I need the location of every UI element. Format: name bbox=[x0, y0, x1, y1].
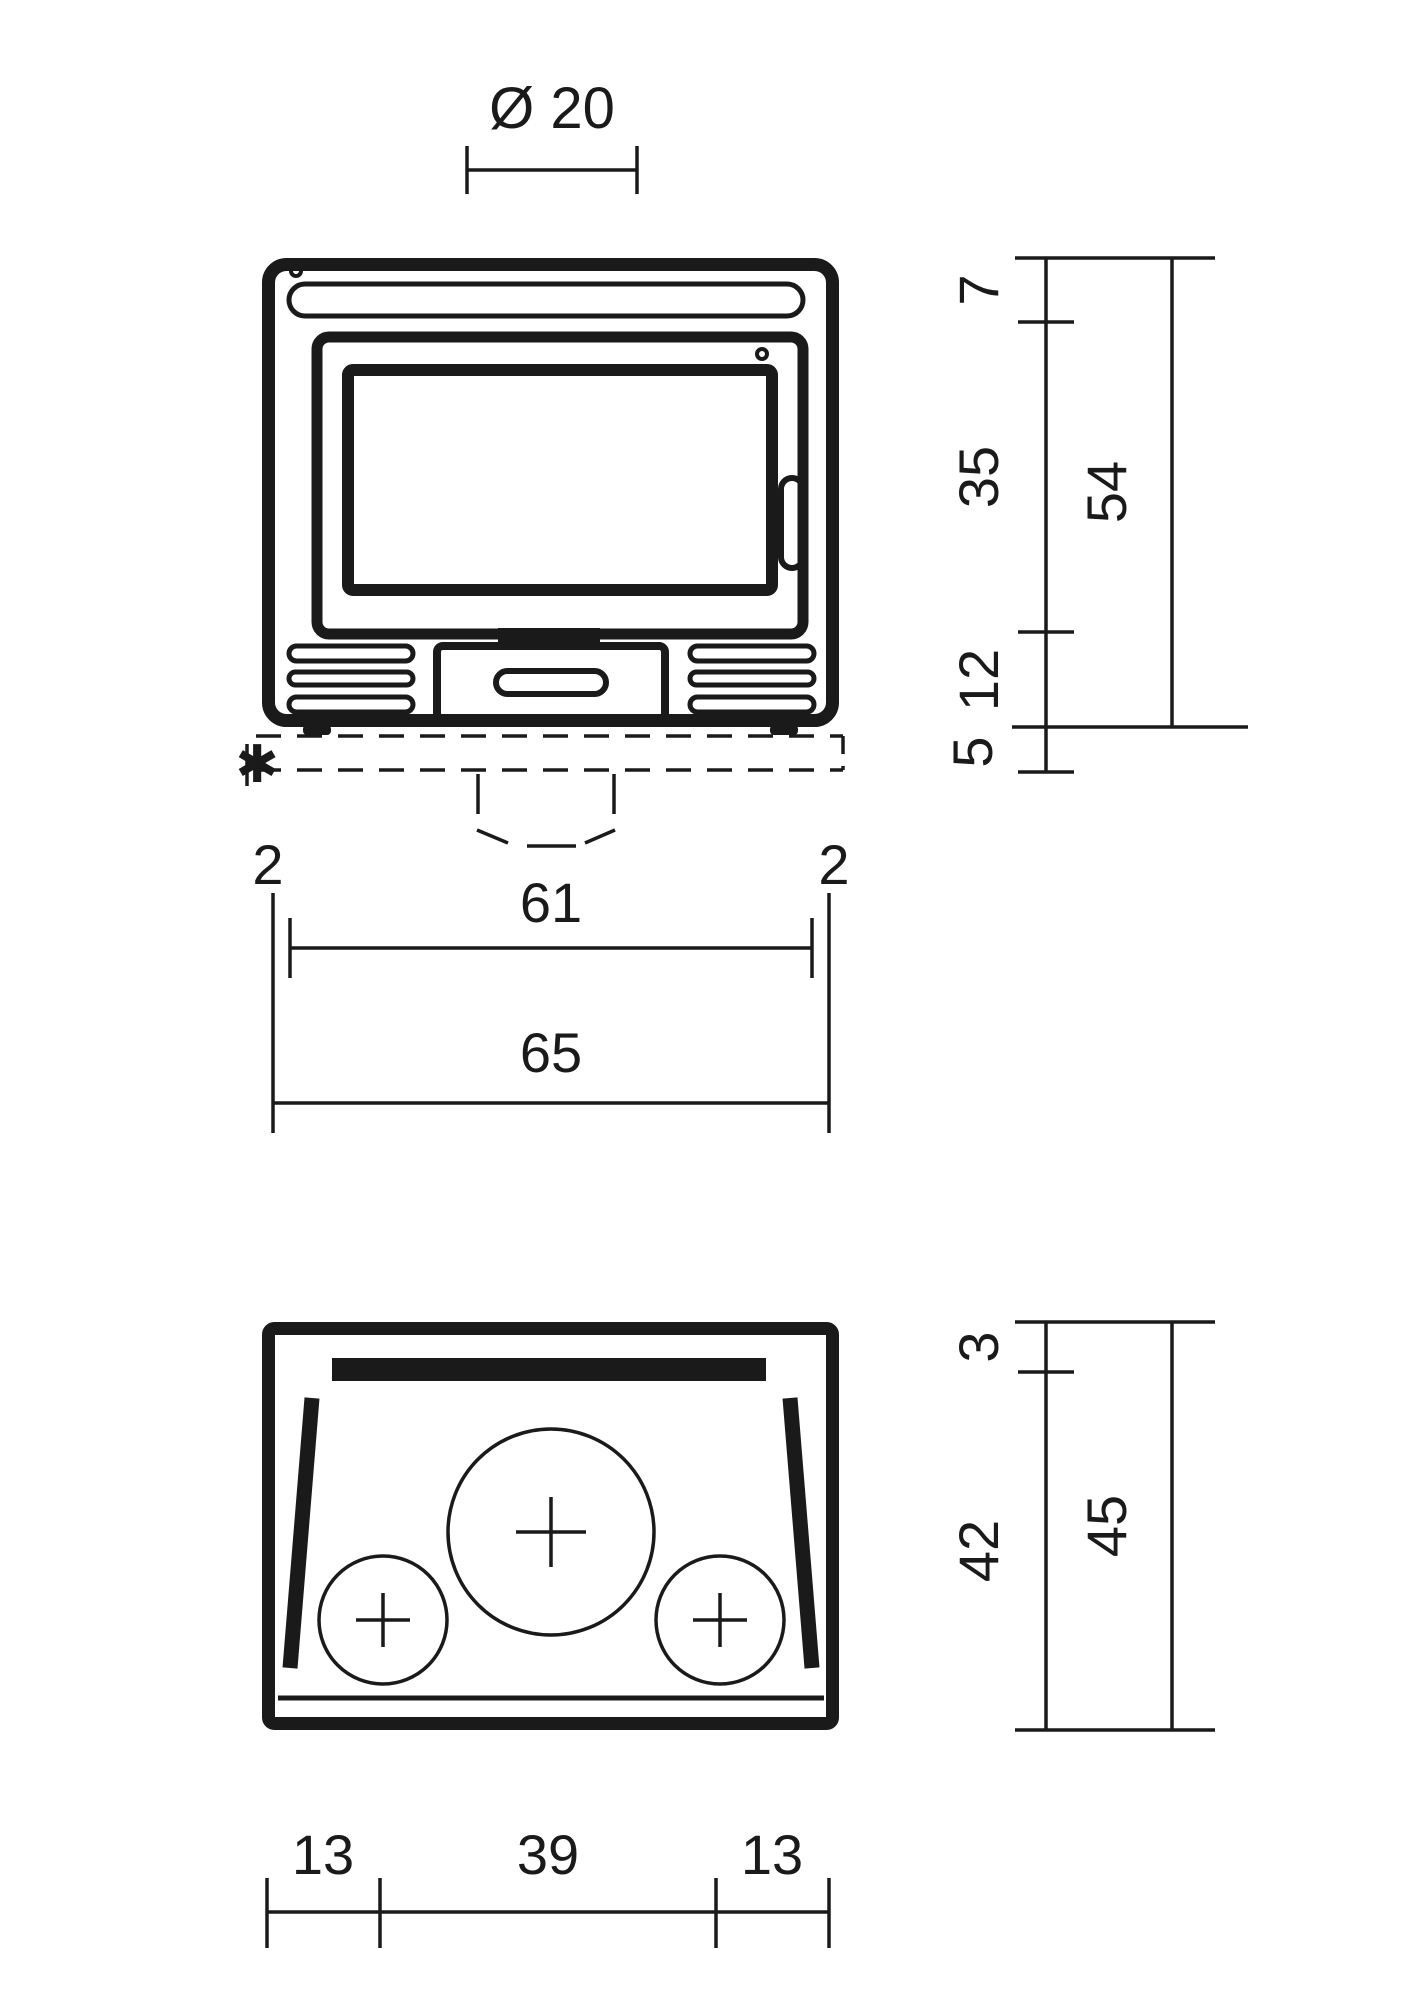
rear-edge-bar bbox=[332, 1358, 766, 1381]
dim-label-top-depth-overall: 45 bbox=[1075, 1495, 1138, 1557]
dim-label-front-offset-left: 2 bbox=[252, 833, 283, 896]
technical-drawing-page: Ø 20 bbox=[0, 0, 1414, 2000]
floor-plate-dashed-outline: ✱ bbox=[235, 736, 843, 794]
drawer-handle bbox=[496, 671, 606, 694]
footnote-asterisk-icon: ✱ bbox=[235, 736, 279, 794]
right-side-bar bbox=[790, 1398, 812, 1668]
left-vent-grille bbox=[289, 646, 413, 712]
dim-label-front-height-top: 7 bbox=[947, 274, 1010, 305]
top-view: 3 42 45 13 39 13 bbox=[267, 1322, 1215, 1948]
dim-label-front-height-base: 12 bbox=[947, 649, 1010, 711]
top-vent-slot bbox=[289, 284, 803, 316]
foot bbox=[770, 725, 798, 735]
door-glass bbox=[348, 370, 772, 590]
dim-label-front-height-door: 35 bbox=[947, 446, 1010, 508]
right-vent-grille bbox=[690, 646, 814, 712]
foot bbox=[303, 725, 331, 735]
left-side-bar bbox=[290, 1398, 312, 1668]
dim-label-top-width-right: 13 bbox=[741, 1823, 803, 1886]
dim-label-front-width-overall: 65 bbox=[520, 1021, 582, 1084]
stove-top-body bbox=[269, 1329, 833, 1724]
front-width-dimensions: 2 2 61 65 bbox=[252, 833, 849, 1133]
right-cooking-ring bbox=[656, 1556, 784, 1684]
front-view: Ø 20 bbox=[235, 76, 1248, 1133]
dim-label-flue-diameter: Ø 20 bbox=[489, 76, 615, 141]
ash-drawer bbox=[437, 646, 665, 719]
dim-label-top-depth-back: 3 bbox=[947, 1331, 1010, 1362]
dim-label-front-height-overall: 54 bbox=[1075, 461, 1138, 523]
dim-label-front-width-inner: 61 bbox=[520, 871, 582, 934]
top-depth-dimensions: 3 42 45 bbox=[947, 1322, 1215, 1730]
dim-label-top-width-left: 13 bbox=[292, 1823, 354, 1886]
center-cooking-ring bbox=[448, 1429, 654, 1635]
dim-label-top-width-center: 39 bbox=[517, 1823, 579, 1886]
screw-icon bbox=[757, 349, 767, 359]
left-cooking-ring bbox=[319, 1556, 447, 1684]
dim-label-top-depth-inner: 42 bbox=[947, 1520, 1010, 1582]
dim-label-front-offset-right: 2 bbox=[818, 833, 849, 896]
dim-label-front-height-plinth: 5 bbox=[941, 736, 1004, 767]
stove-front-body bbox=[269, 265, 833, 736]
front-height-dimensions: 7 35 12 5 54 bbox=[941, 258, 1248, 772]
top-width-dimensions: 13 39 13 bbox=[267, 1823, 829, 1948]
dim-flue-diameter: Ø 20 bbox=[467, 76, 637, 194]
pedestal-dashed-outline bbox=[477, 774, 615, 846]
